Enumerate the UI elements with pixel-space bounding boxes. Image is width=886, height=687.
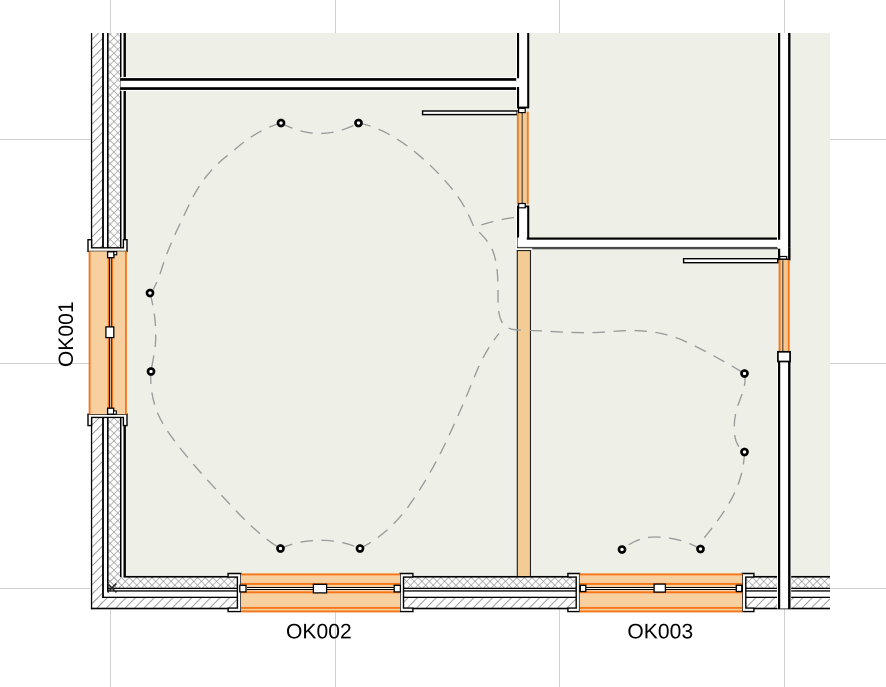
svg-text:OK003: OK003 [627,620,693,643]
svg-text:OK001: OK001 [55,301,78,367]
svg-text:OK002: OK002 [286,620,352,643]
